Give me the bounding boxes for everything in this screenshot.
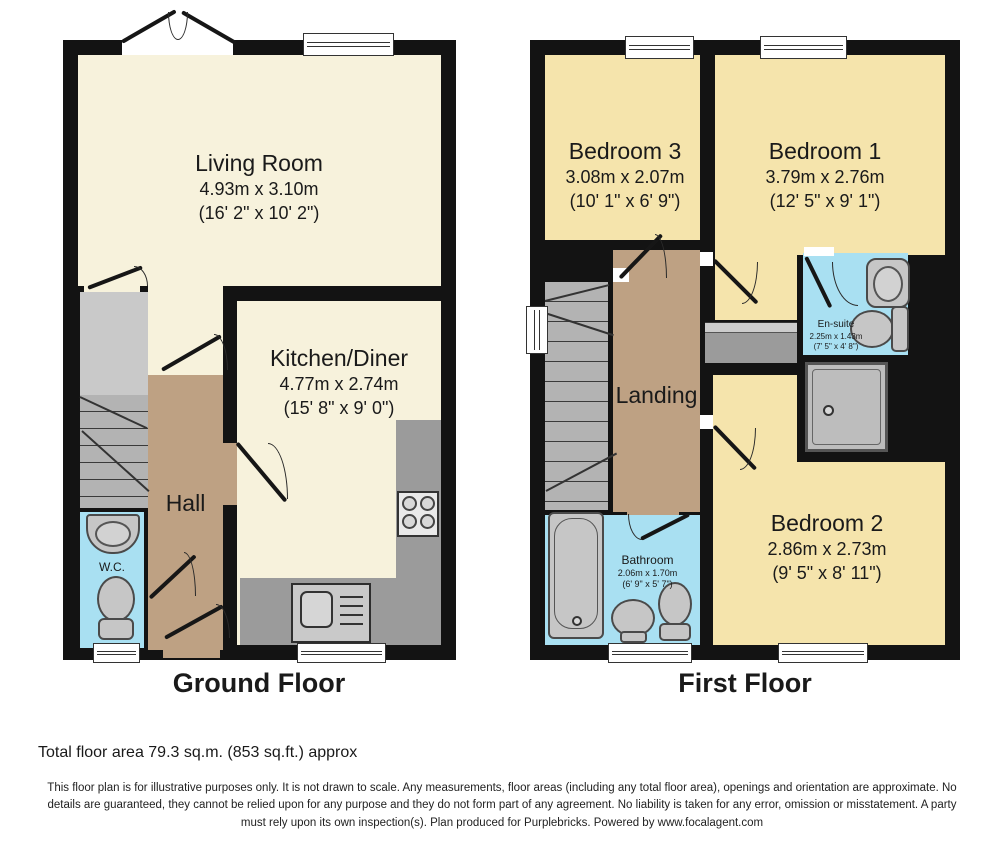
kitchen-hob-icon — [397, 491, 439, 537]
wardrobe-rail-icon — [705, 323, 797, 333]
bedroom2-area-ext — [713, 375, 797, 462]
under-stairs-cupboard — [80, 292, 148, 395]
ensuite-metric: 2.25m x 1.43m — [806, 332, 866, 342]
total-floor-area: Total floor area 79.3 sq.m. (853 sq.ft.)… — [38, 744, 638, 762]
bedroom1-window — [760, 36, 847, 59]
bedroom1-metric: 3.79m x 2.76m — [725, 166, 925, 190]
bedroom3-window — [625, 36, 694, 59]
bedroom2-imperial: (9' 5" x 8' 11") — [722, 562, 932, 586]
disclaimer-text: This floor plan is for illustrative purp… — [42, 780, 962, 832]
ensuite-shower-icon — [805, 362, 888, 452]
hall-kitchen-opening — [223, 443, 237, 505]
bedroom1-label: Bedroom 1 3.79m x 2.76m (12' 5" x 9' 1") — [725, 136, 925, 214]
bedroom3-imperial: (10' 1" x 6' 9") — [535, 190, 715, 214]
bedroom2-door-opening — [700, 415, 713, 429]
kitchen-sink-icon — [291, 583, 371, 643]
landing-label: Landing — [605, 382, 708, 409]
ensuite-door-opening — [804, 247, 834, 256]
french-door-opening — [122, 40, 233, 55]
drainer-line — [340, 614, 363, 616]
bedroom1-imperial: (12' 5" x 9' 1") — [725, 190, 925, 214]
door-arc — [168, 12, 178, 40]
living-room-imperial: (16' 2" x 10' 2") — [109, 202, 409, 226]
ensuite-name: En-suite — [806, 319, 866, 332]
ground-floor-title: Ground Floor — [109, 668, 409, 699]
hob-ring-icon — [420, 496, 435, 511]
hall-label: Hall — [148, 490, 223, 517]
sink-bowl-icon — [300, 591, 333, 628]
front-door-opening — [163, 645, 220, 658]
kitchen-diner-name: Kitchen/Diner — [239, 343, 439, 373]
wc-toilet-icon — [97, 576, 135, 622]
bathroom-toilet-tank-icon — [659, 623, 691, 641]
bedroom3-metric: 3.08m x 2.07m — [535, 166, 715, 190]
bedroom2-label: Bedroom 2 2.86m x 2.73m (9' 5" x 8' 11") — [722, 508, 932, 586]
bath-inner-icon — [554, 518, 598, 629]
first-floor-title: First Floor — [595, 668, 895, 699]
living-room-lobby-area — [148, 286, 223, 375]
living-room-name: Living Room — [109, 148, 409, 178]
stairs-window — [526, 306, 548, 354]
ensuite-imperial: (7' 5" x 4' 8") — [806, 342, 866, 352]
drainer-line — [340, 596, 363, 598]
bedroom2-metric: 2.86m x 2.73m — [722, 538, 932, 562]
bedroom3-name: Bedroom 3 — [535, 136, 715, 166]
hob-ring-icon — [402, 514, 417, 529]
bathroom-metric: 2.06m x 1.70m — [600, 568, 695, 579]
bedroom2-window — [778, 643, 868, 663]
drainer-line — [340, 623, 363, 625]
hob-ring-icon — [420, 514, 435, 529]
kitchen-diner-label: Kitchen/Diner 4.77m x 2.74m (15' 8" x 9'… — [239, 343, 439, 421]
living-room-window — [303, 33, 394, 56]
ensuite-sink-icon — [866, 258, 910, 308]
floorplan-page: Living Room 4.93m x 3.10m (16' 2" x 10' … — [0, 0, 1004, 842]
kitchen-window — [297, 643, 386, 663]
bath-drain-icon — [572, 616, 582, 626]
bathroom-name: Bathroom — [600, 553, 695, 568]
landing-area — [613, 250, 700, 512]
bedroom2-name: Bedroom 2 — [722, 508, 932, 538]
bedroom3-label: Bedroom 3 3.08m x 2.07m (10' 1" x 6' 9") — [535, 136, 715, 214]
bedroom1-name: Bedroom 1 — [725, 136, 925, 166]
sink-basin-icon — [873, 266, 903, 302]
bathroom-sink-pedestal-icon — [620, 631, 647, 643]
bedroom2-wardrobe — [705, 322, 797, 363]
bathroom-window — [608, 643, 692, 663]
bedroom1-door-opening — [700, 252, 713, 266]
ensuite-label: En-suite 2.25m x 1.43m (7' 5" x 4' 8") — [806, 319, 866, 352]
bathroom-imperial: (6' 9" x 5' 7") — [600, 579, 695, 590]
bathroom-label: Bathroom 2.06m x 1.70m (6' 9" x 5' 7") — [600, 553, 695, 591]
wc-label: W.C. — [80, 560, 144, 574]
shower-tray-icon — [812, 369, 881, 445]
wc-window — [93, 643, 140, 663]
wc-toilet-tank-icon — [98, 618, 134, 640]
sink-basin-icon — [95, 521, 131, 547]
shower-drain-icon — [823, 405, 834, 416]
hob-ring-icon — [402, 496, 417, 511]
living-room-label: Living Room 4.93m x 3.10m (16' 2" x 10' … — [109, 148, 409, 226]
bathroom-bath-icon — [548, 512, 604, 639]
drainer-line — [340, 605, 363, 607]
kitchen-diner-metric: 4.77m x 2.74m — [239, 373, 439, 397]
kitchen-diner-imperial: (15' 8" x 9' 0") — [239, 397, 439, 421]
door-arc — [178, 12, 188, 40]
ensuite-toilet-tank-icon — [891, 306, 909, 352]
living-room-metric: 4.93m x 3.10m — [109, 178, 409, 202]
